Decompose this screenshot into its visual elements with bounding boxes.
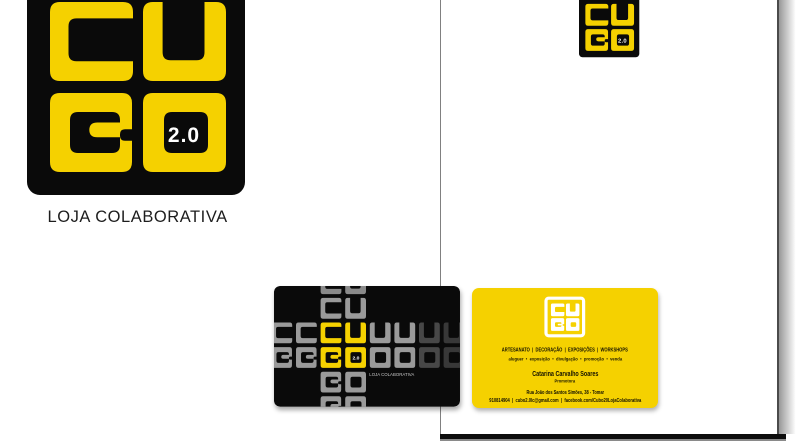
- svg-text:910814904 | cubo2.0lc@gmail.: 910814904 | cubo2.0lc@gmail.com | facebo…: [489, 398, 642, 404]
- svg-text:Catarina Carvalho Soares: Catarina Carvalho Soares: [532, 368, 598, 377]
- svg-text:ARTESANATO | DECORAÇÃO | E: ARTESANATO | DECORAÇÃO | EXPOSIÇÕES | WO…: [501, 346, 627, 353]
- svg-text:2.0: 2.0: [353, 356, 360, 362]
- svg-text:Promotora: Promotora: [554, 378, 575, 384]
- svg-text:2.0: 2.0: [571, 323, 575, 326]
- svg-text:2.0: 2.0: [618, 39, 627, 45]
- svg-text:2.0: 2.0: [168, 124, 200, 147]
- svg-text:aluguer • exposição • divu: aluguer • exposição • divulgação • promo…: [508, 356, 622, 362]
- svg-text:Rua João dos Santos Simões, 38: Rua João dos Santos Simões, 38 - Tomar: [526, 390, 604, 396]
- svg-text:LOJA COLABORATIVA: LOJA COLABORATIVA: [370, 372, 416, 377]
